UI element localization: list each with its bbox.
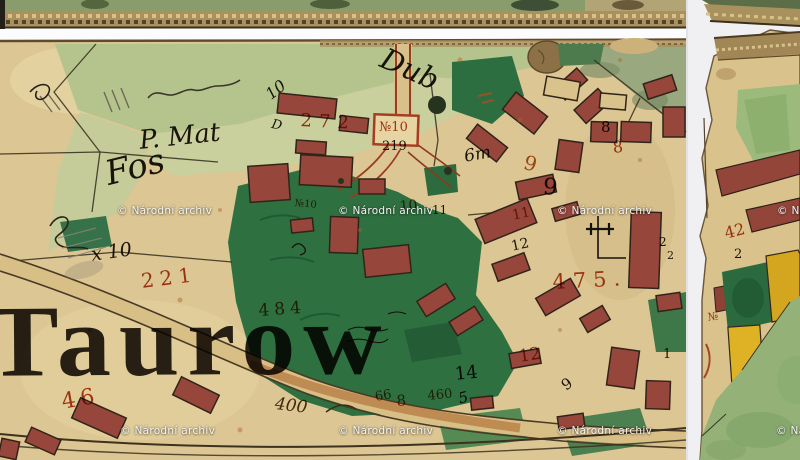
- right-map-sheet: [700, 30, 800, 460]
- upper-sheet-edge-left: [0, 0, 686, 29]
- upper-sheet-edge-right: [702, 0, 800, 26]
- archival-map-scan: Dub10DP. MatFosx 102196m8911122221451940…: [0, 0, 800, 460]
- place-name-taurow: Taurow: [0, 288, 390, 392]
- red-parcel-frame: [373, 114, 418, 146]
- sheet-braided-edge: [0, 11, 686, 28]
